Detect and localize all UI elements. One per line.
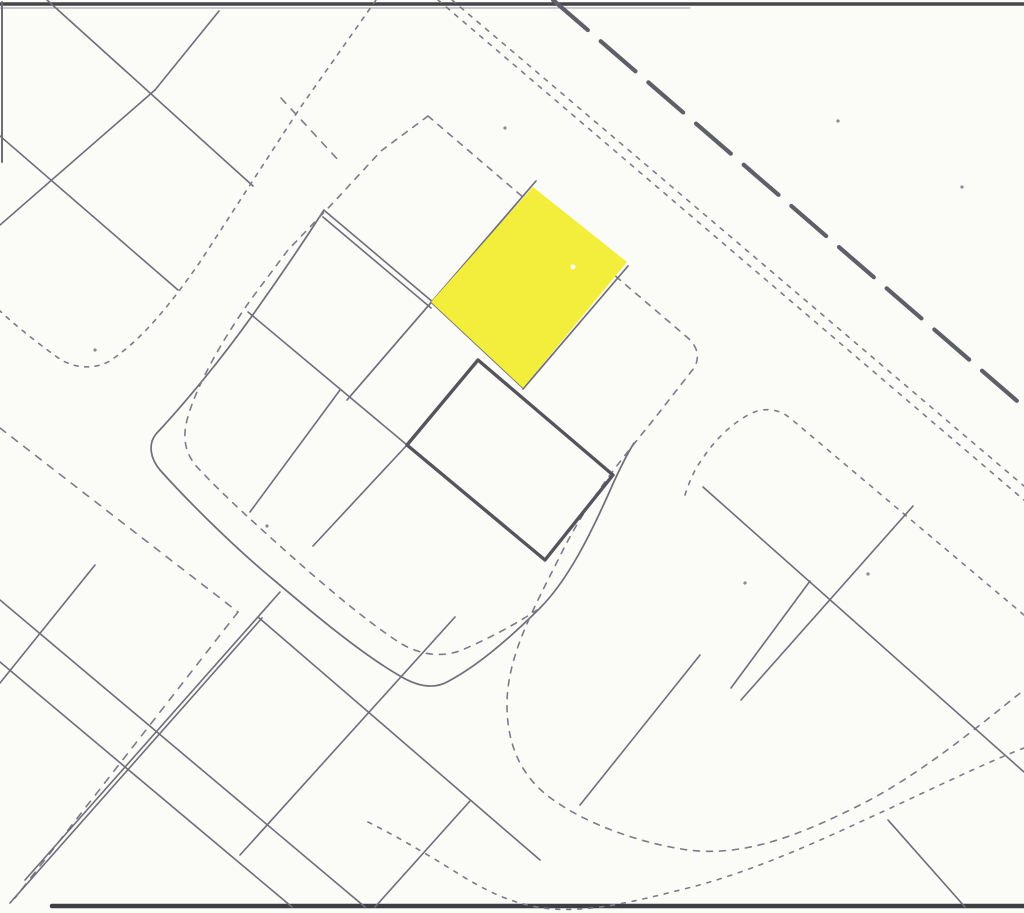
bottomright-parcel-line-v bbox=[580, 655, 700, 805]
bottomleft-short-line bbox=[0, 565, 95, 683]
right-block-parcel-line-v1 bbox=[741, 506, 913, 700]
center-parcel-line-v2 bbox=[313, 445, 407, 546]
narrow-strip-parcel-edge-a bbox=[325, 211, 434, 303]
scan-speck-6 bbox=[93, 348, 96, 351]
scan-speck-5 bbox=[866, 572, 869, 575]
scan-speck-4 bbox=[265, 524, 268, 527]
narrow-strip-parcel-edge-b bbox=[323, 217, 431, 308]
highlighted-parcel bbox=[431, 187, 627, 388]
topleft-parcel-line-c bbox=[0, 136, 178, 290]
bottommiddle-parcel-line-v bbox=[240, 617, 455, 855]
topleft-block-dotted-boundary bbox=[0, 0, 376, 367]
topleft-parcel-line-b2 bbox=[155, 11, 219, 90]
bottomleft-strip-line-b bbox=[0, 662, 292, 907]
road-long-dash bbox=[553, 0, 1024, 407]
center-block-dotted-west bbox=[185, 116, 537, 654]
right-block-dotted-boundary bbox=[685, 410, 1024, 615]
bottomleft-cross-line-b bbox=[10, 618, 262, 903]
scan-speck-3 bbox=[743, 581, 746, 584]
scan-speck-1 bbox=[836, 119, 839, 122]
cadastral-map-canvas bbox=[0, 0, 1024, 913]
center-parcel-line-u bbox=[248, 312, 407, 445]
street-dashed-sw2 bbox=[15, 612, 238, 898]
scan-speck-7 bbox=[503, 126, 506, 129]
center-parcel-line-v1 bbox=[250, 390, 340, 512]
scan-speck-2 bbox=[960, 185, 963, 188]
street-dashed-sw1 bbox=[0, 428, 238, 612]
street-sweep-outer-dotted bbox=[368, 748, 1024, 909]
topleft-parcel-line-b bbox=[0, 90, 155, 225]
bottomleft-cross-line-a bbox=[25, 592, 280, 880]
bottomleft-strip-line-a bbox=[0, 600, 365, 907]
bold-outlined-parcel bbox=[407, 360, 613, 560]
highlighted-parcel-scan-speck bbox=[571, 265, 576, 270]
bottommiddle-parcel-line-u bbox=[258, 617, 540, 860]
street-dash-fragment bbox=[281, 98, 340, 162]
cadastral-map bbox=[0, 0, 1024, 913]
bottommiddle-parcel-line-t bbox=[375, 801, 470, 907]
right-block-parcel-line-u1 bbox=[703, 487, 1024, 772]
bottomright-parcel-line-u bbox=[888, 820, 965, 907]
